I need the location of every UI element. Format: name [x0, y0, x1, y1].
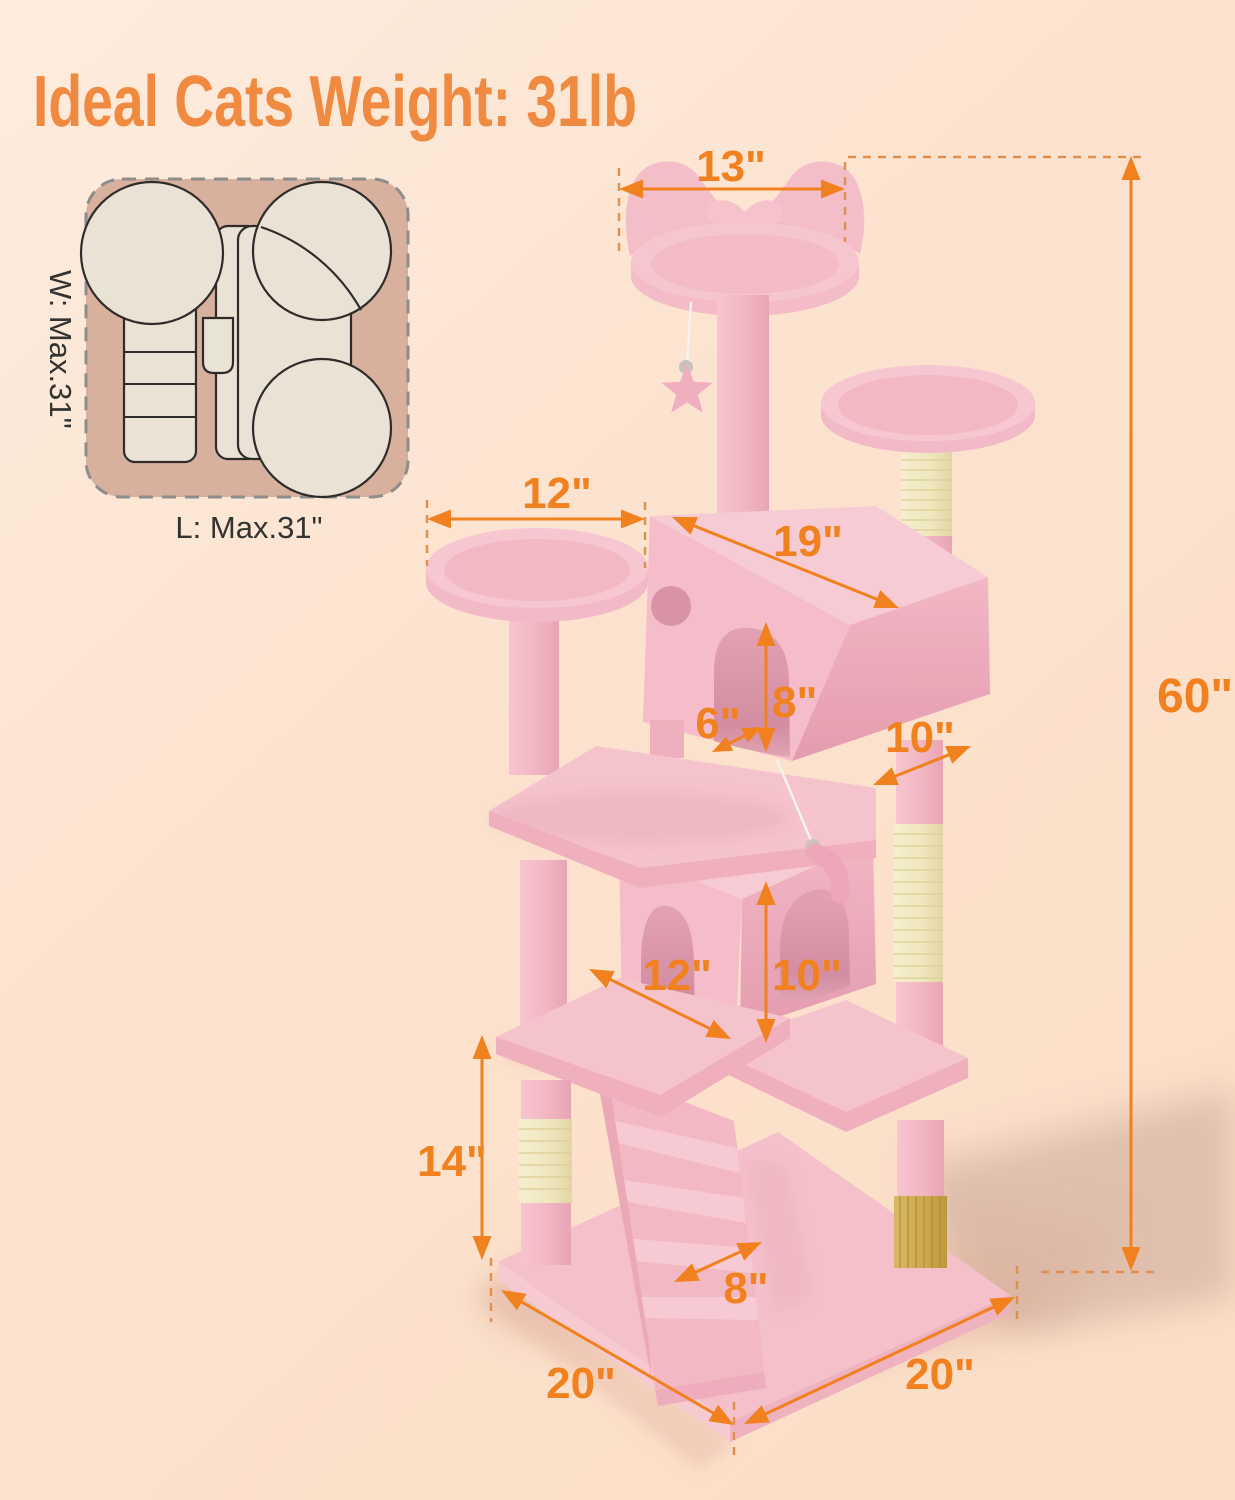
svg-text:14": 14": [417, 1137, 487, 1186]
svg-text:10": 10": [772, 951, 842, 1000]
svg-text:20": 20": [905, 1350, 975, 1399]
svg-text:8": 8": [723, 1264, 768, 1313]
svg-text:20": 20": [546, 1359, 616, 1408]
svg-text:12": 12": [522, 469, 592, 518]
svg-text:10": 10": [885, 713, 955, 762]
svg-text:12": 12": [642, 951, 712, 1000]
svg-text:60": 60": [1157, 670, 1233, 723]
svg-text:13": 13": [696, 142, 766, 191]
svg-text:Ideal Cats Weight: 31lb: Ideal Cats Weight: 31lb: [33, 62, 637, 142]
svg-text:6": 6": [695, 699, 740, 748]
svg-text:19": 19": [773, 517, 843, 566]
svg-text:L: Max.31": L: Max.31": [175, 510, 322, 545]
svg-text:W: Max.31": W: Max.31": [43, 270, 78, 429]
svg-text:8": 8": [772, 678, 817, 727]
